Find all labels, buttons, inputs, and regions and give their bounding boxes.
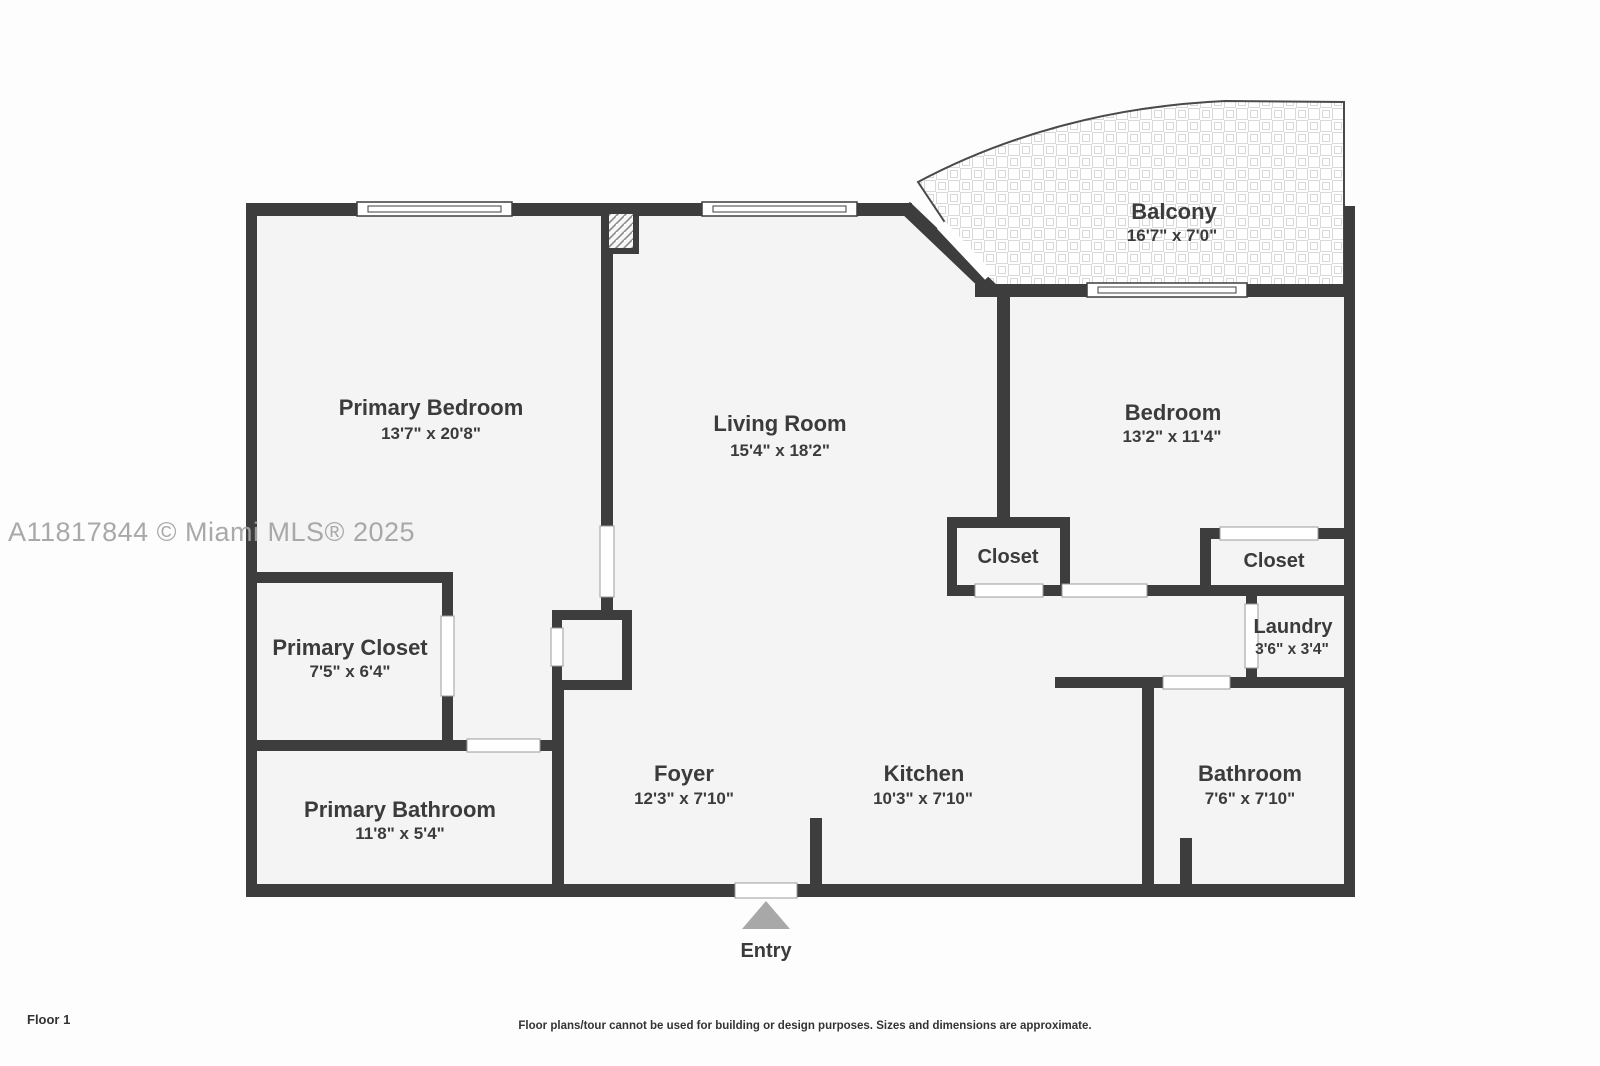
bedroom-closet-label: Closet [1243,550,1304,572]
primary-bedroom-label: Primary Bedroom [339,395,524,420]
wall-bedroom-left [997,290,1010,528]
floor-number-label: Floor 1 [27,1012,70,1027]
primary-bedroom-dims: 13'7" x 20'8" [381,424,481,443]
window-bedroom-pane [1098,287,1236,293]
kitchen-label: Kitchen [884,761,965,786]
wall-band-a [947,585,975,596]
structural-column [603,208,639,254]
wall-right [1344,206,1355,897]
door-entry [735,883,797,898]
living-room-dims: 15'4" x 18'2" [730,441,830,460]
wall-left [246,203,257,897]
wall-bottom [246,884,1355,897]
door-vestibule [551,628,563,666]
balcony-dims: 16'7" x 7'0" [1127,226,1217,245]
wall-foyer-kitchen-stub [810,818,822,884]
floorplan-svg: Primary Bedroom 13'7" x 20'8" Living Roo… [0,0,1600,1066]
balcony-label: Balcony [1131,199,1217,224]
living-room-label: Living Room [713,411,846,436]
bedroom-dims: 13'2" x 11'4" [1123,427,1222,446]
laundry-label: Laundry [1254,616,1334,638]
primary-closet-label: Primary Closet [272,635,428,660]
window-primary-bedroom-pane [368,206,501,212]
wall-kitchen-top-a [1055,677,1163,688]
wall-vestibule-bottom [552,680,632,690]
primary-bathroom-dims: 11'8" x 5'4" [355,824,444,843]
door-bedroom-closet [1220,527,1318,540]
wall-primarycloset-right-a [442,572,453,616]
door-bedroom [1062,584,1147,597]
wall-laundry-left-a [1246,596,1257,604]
window-living-room-pane [713,206,846,212]
wall-primarycloset-top [257,572,453,583]
bathroom-dims: 7'6" x 7'10" [1205,789,1295,808]
unit-floor-fill [251,208,1350,890]
laundry-dims: 3'6" x 3'4" [1255,641,1329,658]
floorplan-image: Primary Bedroom 13'7" x 20'8" Living Roo… [0,0,1600,1066]
disclaimer-text: Floor plans/tour cannot be used for buil… [518,1020,1091,1032]
door-primary-bathroom [467,739,540,752]
wall-primarybathroom-top-a [257,740,467,751]
wall-bedroomcloset-top-a [1200,528,1220,539]
entry-label: Entry [740,940,792,962]
wall-band-c [1147,585,1347,596]
door-bathroom [1163,676,1230,689]
door-living-closet [975,584,1043,597]
door-primary-bedroom [600,526,614,597]
wall-kitchen-bathroom [1142,688,1154,884]
wall-bathroom-stub [1180,838,1192,884]
door-primary-closet [441,616,454,696]
wall-vestibule-right [622,610,632,690]
wall-foyer-bathroom [552,690,564,884]
column-hatch [609,214,633,248]
foyer-dims: 12'3" x 7'10" [634,789,734,808]
bathroom-label: Bathroom [1198,761,1302,786]
foyer-label: Foyer [654,761,714,786]
wall-livingcloset-top [947,517,1070,528]
wall-kitchen-top-b [1230,677,1344,688]
wall-band-b [1043,585,1062,596]
bedroom-label: Bedroom [1125,400,1222,425]
primary-bathroom-label: Primary Bathroom [304,797,496,822]
wall-vestibule-left-b [552,666,562,690]
wall-vestibule-top [552,610,632,620]
wall-bedroomcloset-top-b [1318,528,1344,539]
wall-vestibule-left-a [552,610,562,628]
wall-livingcloset-left [947,517,957,596]
kitchen-dims: 10'3" x 7'10" [873,789,973,808]
mls-watermark: A11817844 © Miami MLS® 2025 [8,517,415,547]
living-closet-label: Closet [977,546,1038,568]
primary-closet-dims: 7'5" x 6'4" [310,662,391,681]
wall-primarybathroom-top-b [540,740,552,751]
wall-primarybedroom-living [601,216,613,526]
